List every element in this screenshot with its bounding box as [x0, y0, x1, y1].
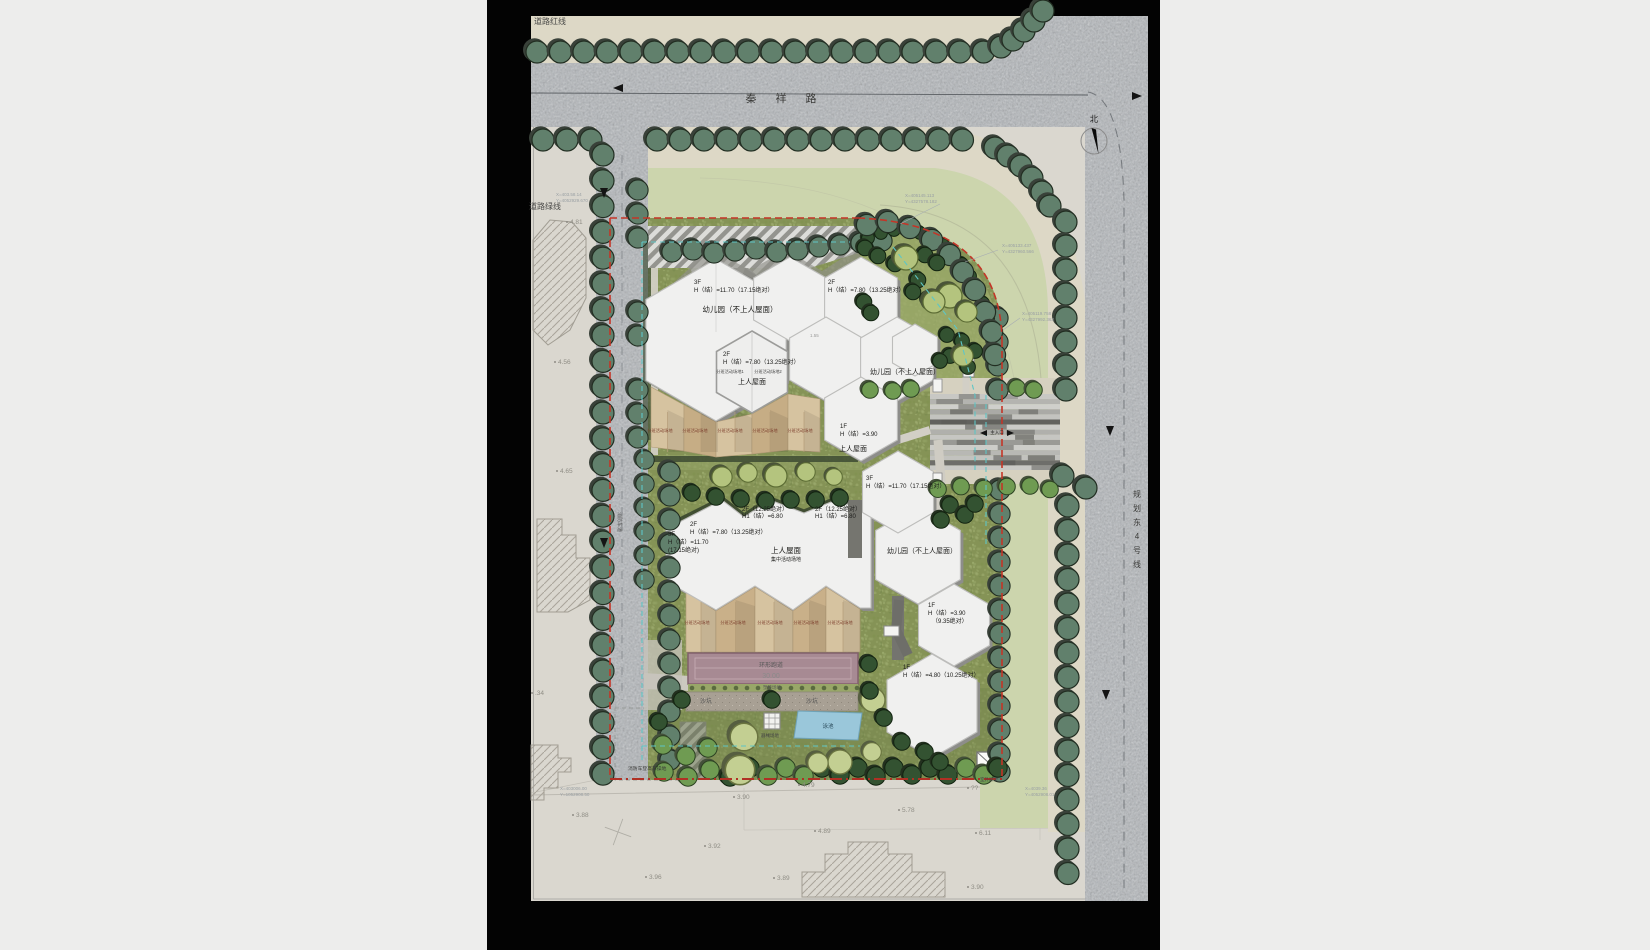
svg-text:H（结）=7.80（13.25绝对）: H（结）=7.80（13.25绝对） — [690, 528, 767, 536]
svg-text:秦 祥 路: 秦 祥 路 — [745, 91, 824, 105]
svg-text:分班活动场地: 分班活动场地 — [752, 427, 778, 434]
svg-text:上人屋面: 上人屋面 — [771, 546, 801, 555]
svg-text:4.65: 4.65 — [560, 468, 573, 475]
svg-text:分班活动场地: 分班活动场地 — [720, 619, 746, 626]
svg-text:??: ?? — [971, 785, 979, 792]
svg-text:Y=4327960.566: Y=4327960.566 — [1002, 249, 1034, 254]
svg-text:1F: 1F — [903, 665, 910, 671]
svg-text:上人屋面: 上人屋面 — [738, 377, 766, 386]
svg-text:2F（12.25绝对）: 2F（12.25绝对） — [742, 505, 788, 513]
svg-text:3.96: 3.96 — [649, 874, 662, 881]
svg-text:(17.15绝对): (17.15绝对) — [668, 546, 699, 554]
svg-text:3.90: 3.90 — [737, 794, 750, 801]
svg-text:分班活动场地1: 分班活动场地1 — [716, 368, 744, 375]
svg-text:.34: .34 — [535, 690, 544, 697]
svg-text:分班活动场地: 分班活动场地 — [684, 619, 710, 626]
svg-text:Y=4052929.670: Y=4052929.670 — [556, 198, 588, 203]
svg-text:X=4039.36: X=4039.36 — [1025, 786, 1047, 791]
svg-text:H（结）=11.70（17.15绝对）: H（结）=11.70（17.15绝对） — [866, 482, 945, 490]
svg-text:X=405145.113: X=405145.113 — [905, 193, 935, 198]
svg-text:X=405119.758: X=405119.758 — [1022, 311, 1052, 316]
svg-text:2F: 2F — [828, 280, 835, 286]
svg-text:1F: 1F — [840, 424, 847, 430]
svg-text:H（结）=11.70（17.15绝对）: H（结）=11.70（17.15绝对） — [694, 286, 773, 294]
svg-text:幼儿园（不上人屋面）: 幼儿园（不上人屋面） — [870, 367, 940, 376]
svg-text:3F: 3F — [668, 532, 675, 538]
svg-text:X=403006.00: X=403006.00 — [560, 786, 587, 791]
svg-text:沙坑: 沙坑 — [700, 697, 712, 705]
svg-text:沙坑: 沙坑 — [806, 697, 818, 705]
svg-text:主入口: 主入口 — [990, 429, 1004, 436]
svg-text:2F: 2F — [723, 352, 730, 358]
svg-text:幼儿园（不上人屋面）: 幼儿园（不上人屋面） — [887, 546, 957, 555]
svg-text:Y=1052908.50: Y=1052908.50 — [560, 792, 590, 797]
svg-text:分班活动场地2: 分班活动场地2 — [754, 368, 782, 375]
svg-text:3F: 3F — [866, 476, 873, 482]
svg-text:4.79: 4.79 — [802, 782, 815, 789]
svg-text:北: 北 — [1090, 114, 1099, 124]
svg-text:塑胶场地: 塑胶场地 — [763, 684, 781, 691]
svg-text:H（结）=3.90: H（结）=3.90 — [928, 609, 966, 617]
svg-text:消防车登高车操地: 消防车登高车操地 — [628, 765, 667, 772]
svg-text:Y=4327578.182: Y=4327578.182 — [905, 199, 937, 204]
svg-text:幼儿园（不上人屋面）: 幼儿园（不上人屋面） — [703, 304, 778, 314]
svg-text:东: 东 — [1133, 517, 1141, 527]
svg-text:室外廊架: 室外廊架 — [980, 776, 998, 783]
svg-text:分班活动场地: 分班活动场地 — [787, 427, 813, 434]
svg-text:4.81: 4.81 — [570, 219, 583, 226]
svg-text:道路红线: 道路红线 — [534, 16, 566, 26]
svg-text:上人屋面: 上人屋面 — [839, 444, 867, 453]
svg-text:划: 划 — [1133, 503, 1141, 513]
svg-text:1F: 1F — [928, 603, 935, 609]
svg-text:30.00: 30.00 — [762, 673, 780, 680]
svg-text:分班活动场地: 分班活动场地 — [827, 619, 853, 626]
svg-text:4: 4 — [1135, 532, 1140, 541]
svg-text:H1（结）=6.80: H1（结）=6.80 — [742, 512, 784, 520]
svg-text:H（结）=4.80（10.25绝对）: H（结）=4.80（10.25绝对） — [903, 671, 980, 679]
svg-text:3.88: 3.88 — [576, 812, 589, 819]
svg-text:器械场地: 器械场地 — [761, 732, 779, 739]
svg-text:号: 号 — [1133, 546, 1141, 555]
svg-text:分班活动场地: 分班活动场地 — [682, 427, 708, 434]
svg-text:环形跑道: 环形跑道 — [759, 661, 783, 669]
svg-text:H（结）=11.70: H（结）=11.70 — [668, 538, 709, 546]
svg-text:3.90: 3.90 — [971, 884, 984, 891]
svg-text:H（结）=7.80（13.25绝对）: H（结）=7.80（13.25绝对） — [723, 358, 800, 366]
svg-text:3.92: 3.92 — [708, 843, 721, 850]
svg-text:消防车道: 消防车道 — [616, 512, 623, 532]
svg-text:分班活动场地: 分班活动场地 — [717, 427, 743, 434]
svg-text:Y=4327992.363: Y=4327992.363 — [1022, 317, 1054, 322]
svg-text:线: 线 — [1133, 559, 1141, 569]
svg-text:分班活动场地: 分班活动场地 — [647, 427, 673, 434]
svg-text:4.89: 4.89 — [818, 828, 831, 835]
svg-text:H（结）=7.80（13.25绝对）: H（结）=7.80（13.25绝对） — [828, 286, 905, 294]
svg-text:X=403.58.14: X=403.58.14 — [556, 192, 582, 197]
svg-text:X=405133.437: X=405133.437 — [1002, 243, 1032, 248]
svg-text:2F（12.25绝对）: 2F（12.25绝对） — [815, 505, 861, 513]
svg-text:H（结）=3.90: H（结）=3.90 — [840, 430, 878, 438]
svg-text:分班活动场地: 分班活动场地 — [757, 619, 783, 626]
svg-text:规: 规 — [1133, 489, 1141, 499]
svg-text:2F: 2F — [690, 522, 697, 528]
svg-text:H1（结）=6.80: H1（结）=6.80 — [815, 512, 857, 520]
svg-text:泳池: 泳池 — [822, 722, 834, 730]
svg-text:6.11: 6.11 — [979, 830, 992, 837]
svg-text:4.56: 4.56 — [558, 359, 571, 366]
svg-text:3F: 3F — [694, 280, 701, 286]
svg-text:5.78: 5.78 — [902, 807, 915, 814]
svg-text:Y=4052908.01: Y=4052908.01 — [1025, 792, 1055, 797]
svg-text:3.89: 3.89 — [777, 875, 790, 882]
svg-text:集中活动场地: 集中活动场地 — [771, 556, 801, 563]
svg-text:（9.35绝对）: （9.35绝对） — [932, 617, 968, 625]
svg-text:分班活动场地: 分班活动场地 — [793, 619, 819, 626]
svg-text:1.55: 1.55 — [810, 333, 819, 338]
